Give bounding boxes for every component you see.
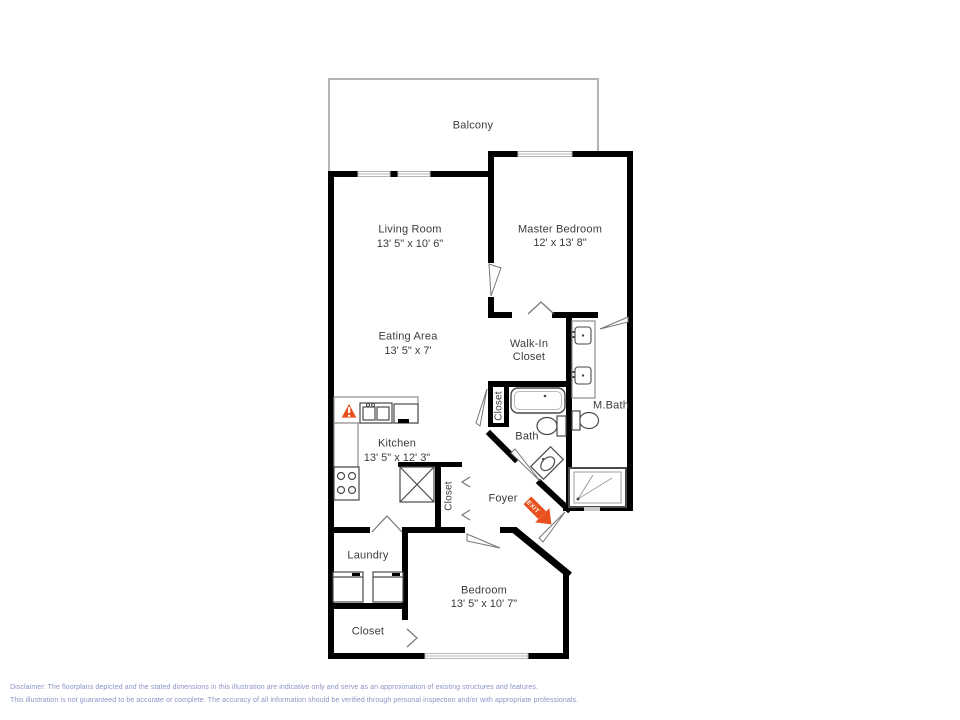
- room-label-bedroom: Bedroom: [461, 585, 507, 598]
- bedroom-door-leaf-icon: [467, 534, 500, 548]
- floorplan-drawing: EXIT: [0, 0, 960, 720]
- room-dims-master-bedroom: 12' x 13' 8": [533, 237, 586, 249]
- room-label-kitchen: Kitchen: [378, 438, 416, 451]
- room-label-foyer: Foyer: [488, 493, 517, 506]
- room-label-master-bedroom: Master Bedroom: [518, 224, 602, 237]
- master-bath-fixtures: [569, 321, 626, 511]
- room-dims-bedroom: 13' 5" x 10' 7": [451, 598, 517, 610]
- bathtub-icon: [511, 388, 565, 413]
- linen-door-leaf-icon: [476, 389, 487, 426]
- bath-toilet-icon: [537, 416, 566, 436]
- washer-icon: [333, 572, 363, 602]
- room-label-balcony: Balcony: [453, 120, 494, 133]
- walkin-open-door-icon: [528, 302, 554, 314]
- room-dims-living-room: 13' 5" x 10' 6": [377, 238, 443, 250]
- room-label-master-bath: M.Bath: [593, 400, 629, 413]
- dryer-icon: [373, 572, 403, 602]
- bedroom-closet-door-icon: [407, 629, 417, 647]
- laundry-door-icon: [372, 516, 402, 532]
- kitchen-cabinet-icon: [334, 423, 358, 467]
- room-label-living-room: Living Room: [378, 224, 441, 237]
- room-label-bath: Bath: [515, 431, 538, 444]
- room-label-walk-in-closet: Walk-In Closet: [498, 338, 560, 364]
- room-dims-eating-area: 13' 5" x 7': [384, 345, 431, 357]
- room-label-hall-closet: Closet: [493, 391, 506, 421]
- shower-icon: [569, 468, 626, 511]
- room-label-laundry: Laundry: [347, 550, 388, 563]
- fridge-icon: [400, 467, 434, 502]
- disclaimer-line-1: Disclaimer: The floorplans depicted and …: [10, 684, 538, 691]
- room-label-bedroom-closet: Closet: [352, 626, 384, 639]
- vanity-sink1-icon: [573, 327, 592, 344]
- kitchen-sink-icon: [360, 403, 392, 423]
- master-door-leaf-icon: [489, 264, 501, 296]
- room-label-eating-area: Eating Area: [378, 331, 437, 344]
- foyer-closet-door2-icon: [462, 510, 470, 520]
- mbath-toilet-icon: [572, 411, 599, 430]
- mbath-door-leaf-icon: [600, 317, 628, 329]
- disclaimer-line-2: This illustration is not guaranteed to b…: [10, 697, 578, 704]
- floorplan-canvas: EXIT Balcony Living Room 13' 5" x 10' 6"…: [0, 0, 960, 720]
- stove-icon: [334, 467, 359, 500]
- dishwasher-icon: [394, 404, 418, 423]
- bedroom-window-icon: [425, 654, 528, 659]
- laundry-fixtures: [333, 572, 403, 602]
- room-dims-kitchen: 13' 5" x 12' 3": [364, 452, 430, 464]
- room-label-foyer-closet: Closet: [443, 481, 456, 511]
- master-bedroom-window-icon: [518, 152, 572, 157]
- corner-sink-icon: [531, 447, 564, 480]
- foyer-closet-door-icon: [462, 477, 470, 487]
- vanity-sink2-icon: [573, 367, 592, 384]
